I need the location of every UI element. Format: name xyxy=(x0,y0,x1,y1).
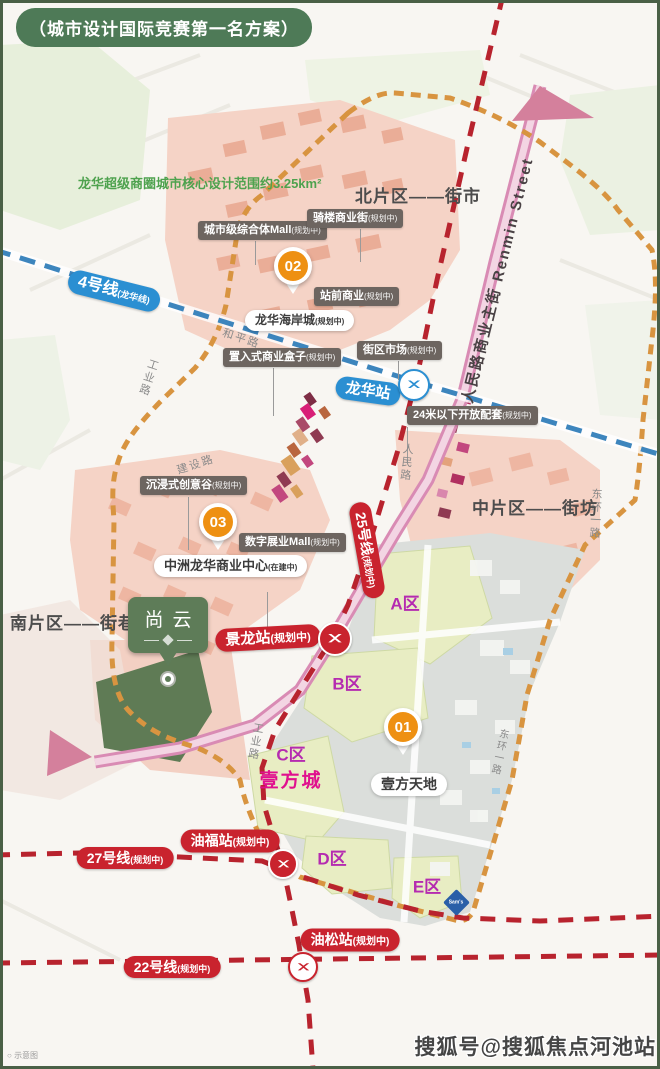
poi-status: (规划中) xyxy=(364,292,393,301)
line-status: (规划中) xyxy=(177,964,210,974)
line-status: (规划中) xyxy=(361,555,377,589)
pin-head: 01 xyxy=(384,708,422,746)
schematic-note: ○ 示意图 xyxy=(7,1050,38,1061)
station-youfu-metro-icon xyxy=(268,849,298,879)
white-label-yifang-tiandi: 壹方天地 xyxy=(371,773,447,796)
poi-status: (规划中) xyxy=(306,353,335,362)
pin-head: 02 xyxy=(274,247,312,285)
white-label-zhongzhou-center: 中洲龙华商业中心(在建中) xyxy=(154,555,307,577)
metro-logo-icon xyxy=(325,629,345,649)
pin-number: 02 xyxy=(278,251,308,281)
poi-label-commercial-boxes: 置入式商业盒子(规划中) xyxy=(223,348,341,367)
label-status: (规划中) xyxy=(315,317,344,326)
pin-head: 03 xyxy=(199,503,237,541)
shangyun-callout: 尚云 xyxy=(128,597,208,653)
line-status: (规划中) xyxy=(130,855,163,865)
station-status: (规划中) xyxy=(353,937,390,948)
zone-label-c: C区 xyxy=(276,741,305,766)
label-text: 壹方天地 xyxy=(381,776,437,792)
station-youfu-pill: 油福站(规划中) xyxy=(181,830,280,853)
competition-badge: （城市设计国际竞赛第一名方案） xyxy=(16,8,312,47)
zone-label-d: D区 xyxy=(317,845,346,870)
pin-number: 03 xyxy=(203,507,233,537)
zone-label-e: E区 xyxy=(413,873,441,898)
label-status: (在建中) xyxy=(268,563,297,572)
station-name: 景龙站 xyxy=(225,629,271,648)
poi-status: (规划中) xyxy=(212,481,241,490)
pin-03: 03 xyxy=(199,503,237,555)
scope-note: 龙华超级商圈城市核心设计范围约3.25km² xyxy=(78,173,321,192)
poi-text: 置入式商业盒子 xyxy=(229,351,306,363)
metro-logo-icon xyxy=(405,376,423,394)
poi-text: 沉浸式创意谷 xyxy=(146,479,212,491)
poi-label-station-front: 站前商业(规划中) xyxy=(314,287,399,306)
zone-label-b: B区 xyxy=(332,670,361,695)
shangyun-diamond-logo-icon xyxy=(162,634,173,645)
station-longhua-metro-icon xyxy=(398,369,430,401)
schematic-note-text: 示意图 xyxy=(14,1051,38,1060)
logo-rule-right xyxy=(177,640,192,641)
connector-line xyxy=(255,241,256,265)
station-status: (规划中) xyxy=(233,838,270,849)
station-status: (规划中) xyxy=(270,631,311,645)
line-name: 27号线 xyxy=(87,850,131,866)
pin-02: 02 xyxy=(274,247,312,299)
label-text: 中洲龙华商业中心 xyxy=(164,558,268,573)
pin-number: 01 xyxy=(388,712,418,742)
target-dot xyxy=(165,676,171,682)
poi-text: 数字展业Mall xyxy=(245,536,310,548)
station-name: 油福站 xyxy=(191,833,233,849)
line-name: 22号线 xyxy=(134,959,178,975)
poi-text: 街区市场 xyxy=(363,344,407,356)
planning-map: （城市设计国际竞赛第一名方案） 龙华超级商圈城市核心设计范围约3.25km² 北… xyxy=(0,0,660,1069)
poi-label-arcade-street: 骑楼商业街(规划中) xyxy=(307,209,403,228)
poi-status: (规划中) xyxy=(407,346,436,355)
district-label-middle: 中片区——街坊 xyxy=(472,494,598,519)
poi-text: 站前商业 xyxy=(320,290,364,302)
district-label-south: 南片区——街巷 xyxy=(10,609,136,634)
watermark: 搜狐号@搜狐焦点河池站 xyxy=(415,1031,656,1061)
logo-rule-left xyxy=(144,640,159,641)
poi-status: (规划中) xyxy=(502,411,531,420)
station-name: 龙华站 xyxy=(345,379,392,402)
poi-status: (规划中) xyxy=(368,214,397,223)
label-text: 龙华海岸城 xyxy=(255,313,315,327)
line-name: 25号线 xyxy=(352,511,375,557)
poi-text: 城市级综合体Mall xyxy=(204,224,291,236)
station-yousong-pill: 油松站(规划中) xyxy=(301,929,400,952)
poi-label-block-market: 街区市场(规划中) xyxy=(357,341,442,360)
station-jinglong-metro-icon xyxy=(318,622,352,656)
poi-label-digital-mall: 数字展业Mall(规划中) xyxy=(239,533,346,552)
pin-01: 01 xyxy=(384,708,422,760)
district-label-north: 北片区——街市 xyxy=(355,182,481,207)
shangyun-name: 尚云 xyxy=(128,605,208,632)
line27-pill: 27号线(规划中) xyxy=(77,847,174,869)
connector-line xyxy=(360,229,361,262)
poi-label-creative-valley: 沉浸式创意谷(规划中) xyxy=(140,476,247,495)
metro-logo-icon xyxy=(275,856,292,873)
zone-label-a: A区 xyxy=(390,590,419,615)
poi-label-open-amenities: 24米以下开放配套(规划中) xyxy=(407,406,538,425)
connector-line xyxy=(273,368,274,416)
white-label-longhua-coast-city: 龙华海岸城(规划中) xyxy=(245,310,354,331)
poi-text: 24米以下开放配套 xyxy=(413,409,502,421)
poi-text: 骑楼商业街 xyxy=(313,212,368,224)
connector-line xyxy=(188,497,189,550)
station-name: 油松站 xyxy=(311,932,353,948)
station-yousong-metro-icon xyxy=(288,952,318,982)
callout-tail xyxy=(159,652,177,675)
line22-pill: 22号线(规划中) xyxy=(124,956,221,978)
sams-label: Sam's xyxy=(449,900,464,906)
poi-status: (规划中) xyxy=(310,538,339,547)
metro-logo-icon xyxy=(295,959,312,976)
shangyun-logo-row xyxy=(128,636,208,644)
line-status: (龙华线) xyxy=(116,288,150,306)
yifangcheng-label: 壹方城 xyxy=(259,766,322,793)
